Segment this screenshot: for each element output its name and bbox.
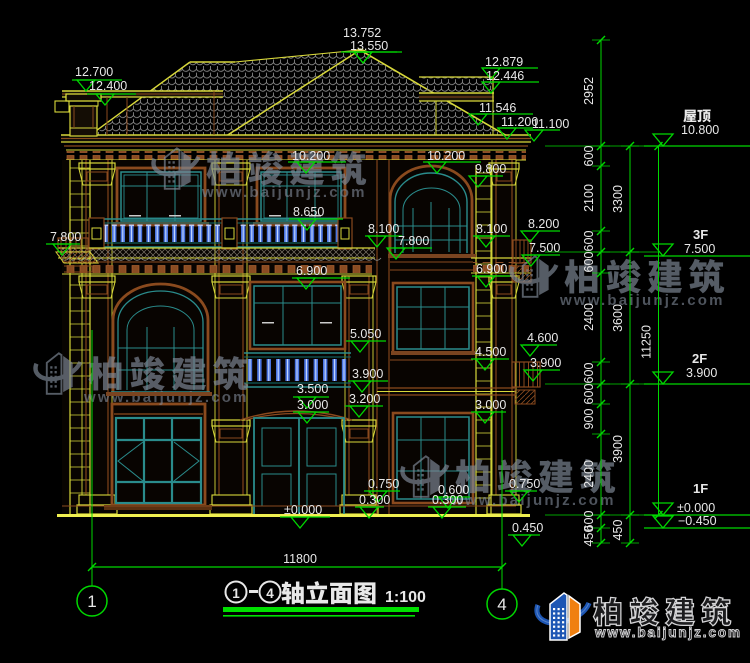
svg-text:13.550: 13.550 <box>350 39 388 53</box>
svg-text:0.300: 0.300 <box>432 493 463 507</box>
svg-text:3300: 3300 <box>611 185 625 213</box>
svg-text:3900: 3900 <box>611 435 625 463</box>
svg-text:6.900: 6.900 <box>476 262 507 276</box>
svg-text:4: 4 <box>266 586 274 601</box>
svg-text:−0.450: −0.450 <box>678 514 717 528</box>
svg-text:www.baijunjz.com: www.baijunjz.com <box>201 184 367 201</box>
svg-text:11800: 11800 <box>283 552 317 566</box>
svg-text:11250: 11250 <box>640 325 654 359</box>
svg-text:13.752: 13.752 <box>343 26 381 40</box>
svg-text:±0.000: ±0.000 <box>284 503 322 517</box>
svg-text:12.400: 12.400 <box>89 79 127 93</box>
svg-text:3.000: 3.000 <box>475 398 506 412</box>
svg-text:6.900: 6.900 <box>296 264 327 278</box>
svg-text:7.500: 7.500 <box>684 242 715 256</box>
svg-text:600: 600 <box>582 363 596 384</box>
svg-text:8.100: 8.100 <box>476 222 507 236</box>
svg-text:600: 600 <box>582 146 596 167</box>
svg-text:4: 4 <box>497 595 506 614</box>
svg-text:10.200: 10.200 <box>427 149 465 163</box>
svg-text:2952: 2952 <box>582 77 596 105</box>
svg-text:3.000: 3.000 <box>297 398 328 412</box>
svg-text:3F: 3F <box>693 227 708 242</box>
svg-text:600: 600 <box>582 384 596 405</box>
svg-text:3600: 3600 <box>611 304 625 332</box>
svg-text:450: 450 <box>582 526 596 547</box>
svg-text:0.300: 0.300 <box>359 493 390 507</box>
svg-text:10.200: 10.200 <box>292 149 330 163</box>
svg-text:11.100: 11.100 <box>532 117 569 131</box>
svg-text:900: 900 <box>582 409 596 430</box>
svg-text:www.baijunjz.com: www.baijunjz.com <box>594 625 742 640</box>
svg-text:5.050: 5.050 <box>350 327 381 341</box>
svg-text:2400: 2400 <box>582 460 596 488</box>
svg-text:1: 1 <box>232 586 240 601</box>
svg-text:12.879: 12.879 <box>485 55 523 69</box>
svg-text:7.500: 7.500 <box>529 241 560 255</box>
svg-text:4.500: 4.500 <box>475 345 506 359</box>
svg-text:1:100: 1:100 <box>385 589 426 606</box>
svg-text:4.600: 4.600 <box>527 331 558 345</box>
svg-text:3.900: 3.900 <box>352 367 383 381</box>
svg-text:3.200: 3.200 <box>349 392 380 406</box>
svg-text:9.800: 9.800 <box>475 162 506 176</box>
svg-text:3.500: 3.500 <box>297 382 328 396</box>
svg-text:2400: 2400 <box>582 303 596 331</box>
svg-text:12.700: 12.700 <box>75 65 113 79</box>
svg-text:7.800: 7.800 <box>50 230 81 244</box>
svg-text:8.100: 8.100 <box>368 222 399 236</box>
svg-text:12.446: 12.446 <box>486 69 524 83</box>
svg-text:3.900: 3.900 <box>686 366 717 380</box>
svg-text:11.546: 11.546 <box>479 101 516 115</box>
svg-text:8.200: 8.200 <box>528 217 559 231</box>
svg-text:2100: 2100 <box>582 184 596 212</box>
svg-text:±0.000: ±0.000 <box>677 501 715 515</box>
svg-text:8.650: 8.650 <box>293 205 324 219</box>
svg-text:1F: 1F <box>693 481 708 496</box>
svg-text:3.900: 3.900 <box>530 356 561 370</box>
svg-text:600: 600 <box>582 231 596 252</box>
svg-text:0.750: 0.750 <box>368 477 399 491</box>
svg-text:10.800: 10.800 <box>681 123 719 137</box>
svg-text:7.800: 7.800 <box>398 234 429 248</box>
svg-text:1: 1 <box>87 592 96 611</box>
svg-text:0.750: 0.750 <box>509 477 540 491</box>
svg-text:www.baijunjz.com: www.baijunjz.com <box>83 389 249 406</box>
svg-text:0.450: 0.450 <box>512 521 543 535</box>
svg-text:450: 450 <box>611 520 625 541</box>
svg-text:600: 600 <box>582 252 596 273</box>
svg-text:2F: 2F <box>692 351 707 366</box>
